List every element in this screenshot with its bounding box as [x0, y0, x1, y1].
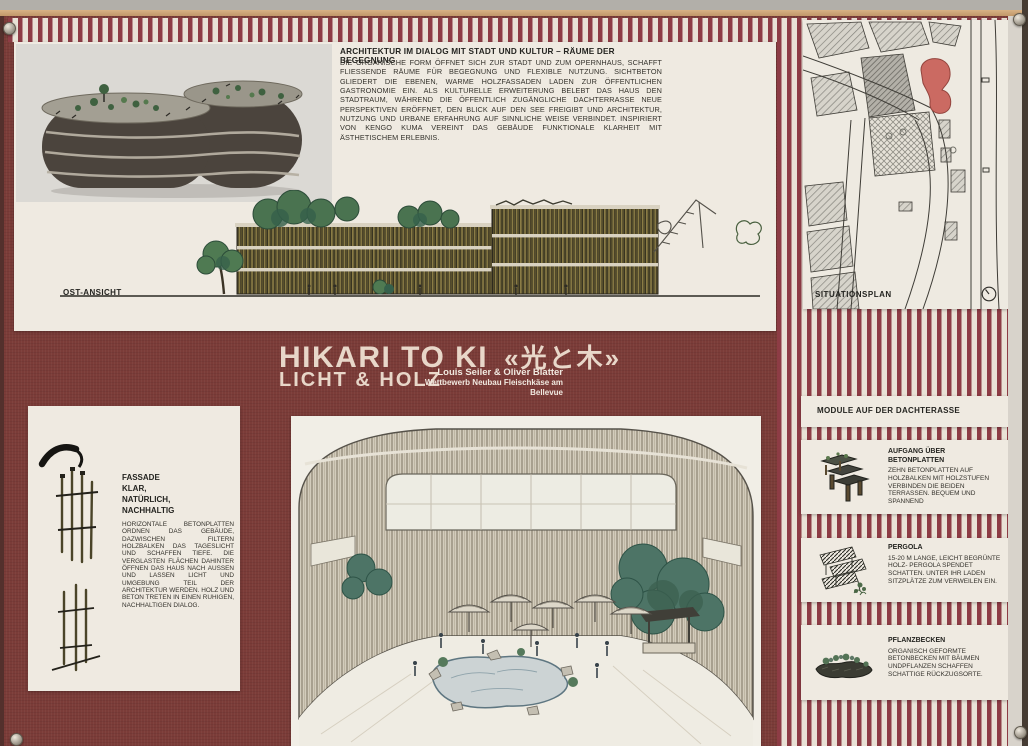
module-card-planter: PFLANZBECKEN ORGANISCH GEFORMTE BETONBEC… — [801, 625, 1008, 700]
facade-heading-line: FASSADE — [122, 472, 174, 483]
north-arrow-icon — [981, 286, 997, 302]
pushpin-icon — [1014, 726, 1027, 739]
facade-sketch — [34, 412, 120, 685]
poster-left-edge — [0, 16, 4, 746]
board-right-edge — [1022, 0, 1028, 746]
module-card-pergola: PERGOLA 15-20 M LANGE, LEICHT BEGRÜNTE H… — [801, 538, 1008, 602]
situationsplan-panel: SITUATIONSPLAN — [803, 20, 1008, 309]
pushpin-icon — [3, 22, 16, 35]
facade-body: HORIZONTALE BETONPLATTEN ORDNEN DAS GEBÄ… — [122, 521, 234, 609]
courtyard-perspective-drawing — [291, 416, 761, 746]
credits: Louis Seiler & Oliver Blatter Wettbewerb… — [418, 367, 563, 398]
model-building-drawing — [16, 44, 332, 202]
module-title: AUFGANG ÜBER BETONPLATTEN — [888, 448, 1002, 465]
module-card-steps: AUFGANG ÜBER BETONPLATTEN ZEHN BETONPLAT… — [801, 440, 1008, 514]
pushpin-icon — [1013, 13, 1026, 26]
facade-heading: FASSADE KLAR, NATÜRLICH, NACHHALTIG — [122, 472, 174, 516]
perspective-panel — [291, 416, 761, 746]
module-title: PERGOLA — [888, 544, 1002, 553]
concrete-steps-icon — [816, 445, 872, 512]
elevation-drawing — [58, 190, 764, 302]
module-body: ORGANISCH GEFORMTE BETONBECKEN MIT BÄUME… — [888, 648, 1002, 679]
situationsplan-label: SITUATIONSPLAN — [815, 290, 892, 299]
planter-icon — [812, 643, 876, 688]
elevation-label: OST-ANSICHT — [63, 288, 122, 297]
situationsplan-drawing — [803, 20, 1008, 309]
pushpin-icon — [10, 733, 23, 746]
facade-heading-line: NACHHALTIG — [122, 505, 174, 516]
modules-header-strip: MODULE AUF DER DACHTERASSE — [801, 396, 1008, 427]
module-body: 15-20 M LANGE, LEICHT BEGRÜNTE HOLZ- PER… — [888, 555, 1002, 586]
model-photo — [16, 44, 332, 202]
facade-heading-line: NATÜRLICH, — [122, 494, 174, 505]
modules-heading: MODULE AUF DER DACHTERASSE — [817, 406, 960, 415]
module-body: ZEHN BETONPLATTEN AUF HOLZBALKEN MIT HOL… — [888, 467, 1002, 506]
facade-heading-line: KLAR, — [122, 483, 174, 494]
pergola-icon — [814, 541, 874, 604]
poster-photo: ARCHITEKTUR IM DIALOG MIT STADT UND KULT… — [0, 0, 1028, 746]
module-title: PFLANZBECKEN — [888, 637, 1002, 646]
poster-right-margin — [1008, 16, 1022, 746]
credit-authors: Louis Seiler & Oliver Blatter — [418, 367, 563, 378]
credit-competition: Wettbewerb Neubau Fleischkäse am Bellevu… — [418, 378, 563, 398]
intro-body: DIE ORGANISCHE FORM ÖFFNET SICH ZUR STAD… — [340, 58, 662, 142]
